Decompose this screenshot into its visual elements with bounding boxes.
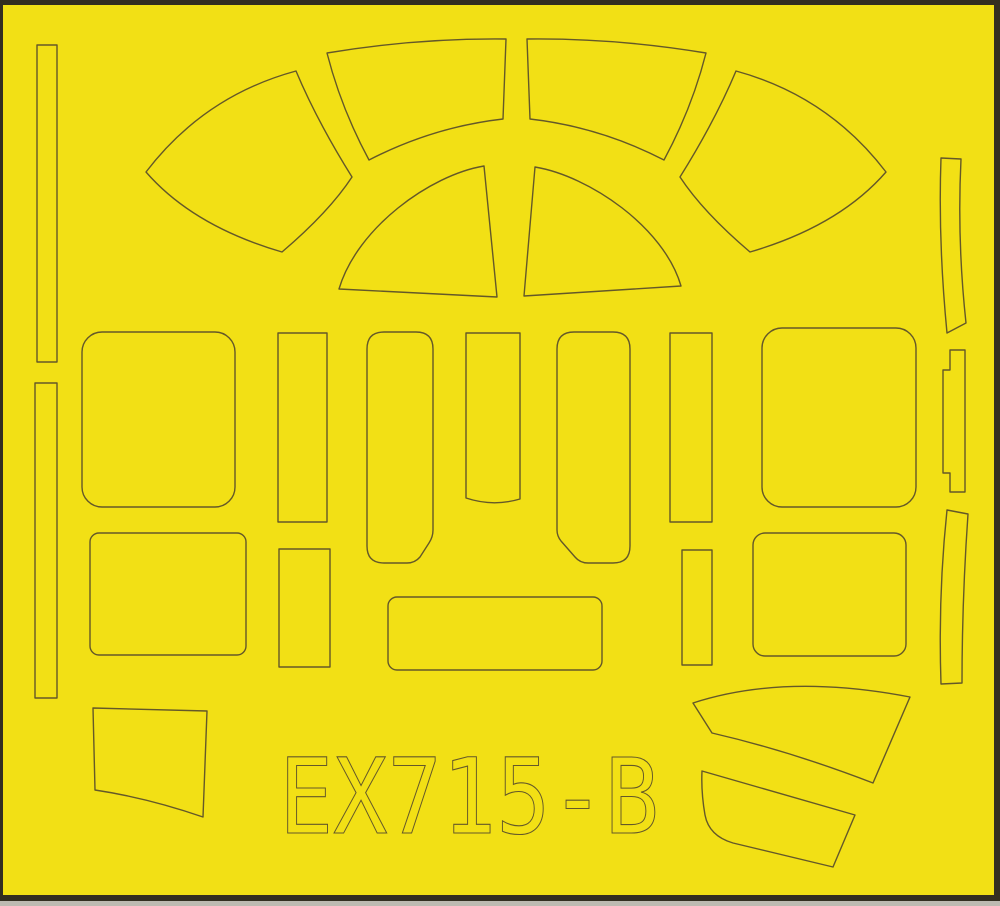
mask-sheet-photo: EX715-B: [0, 0, 1000, 906]
sheet-code-text: EX715-B: [279, 736, 659, 858]
mask-sheet-canvas: EX715-B: [0, 0, 1000, 906]
sheet-bottom-edge-highlight: [0, 901, 1000, 906]
